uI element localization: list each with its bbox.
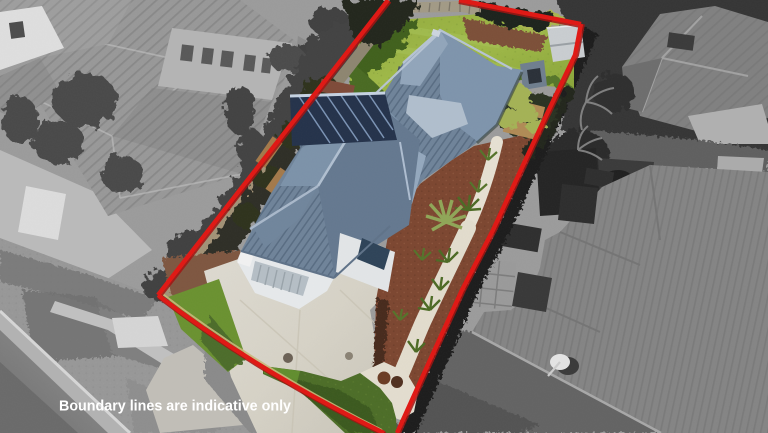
svg-text:Boundary lines are indicative: Boundary lines are indicative only [59,399,291,415]
